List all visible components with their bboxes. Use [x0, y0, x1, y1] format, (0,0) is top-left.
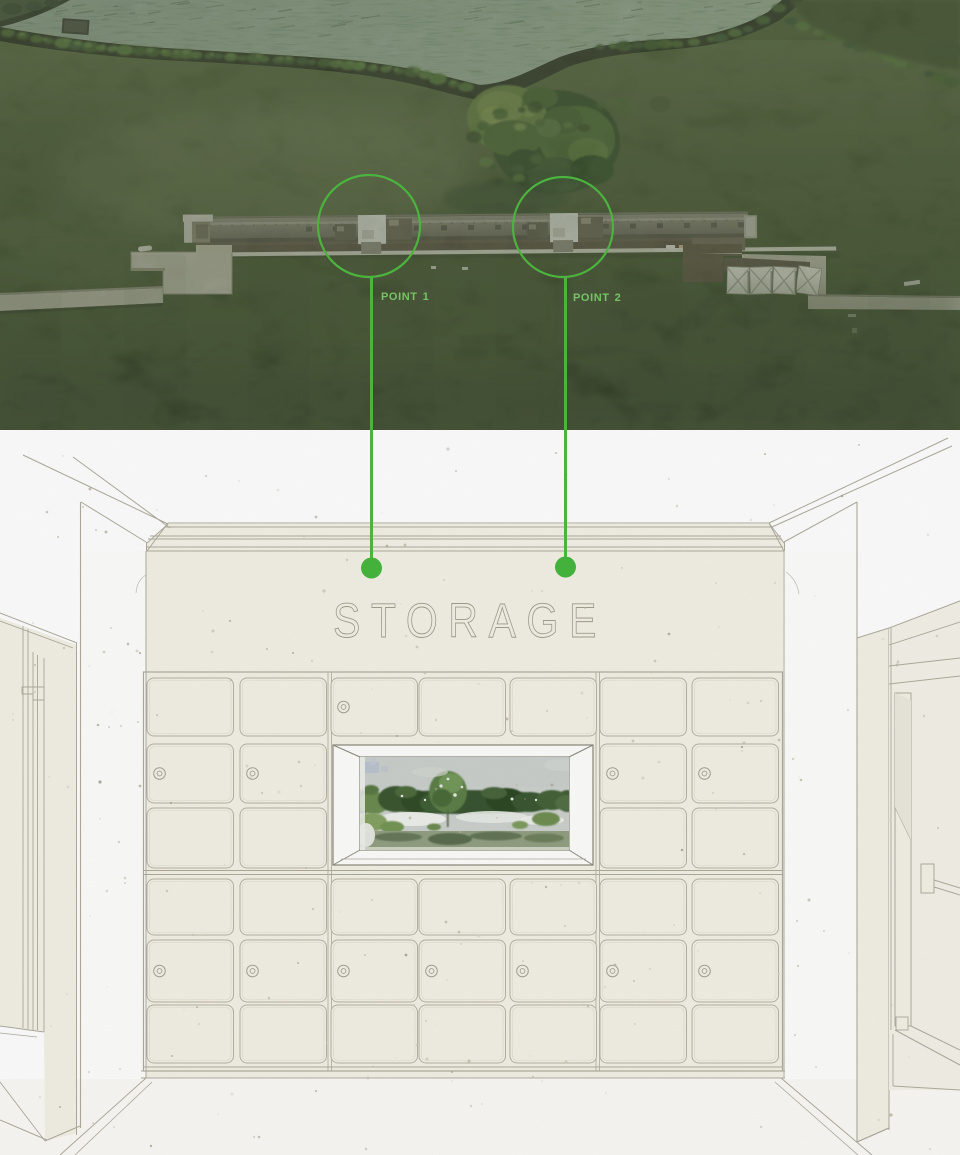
svg-text:POINT1: POINT1 [381, 291, 429, 303]
svg-text:POINT2: POINT2 [573, 292, 621, 304]
